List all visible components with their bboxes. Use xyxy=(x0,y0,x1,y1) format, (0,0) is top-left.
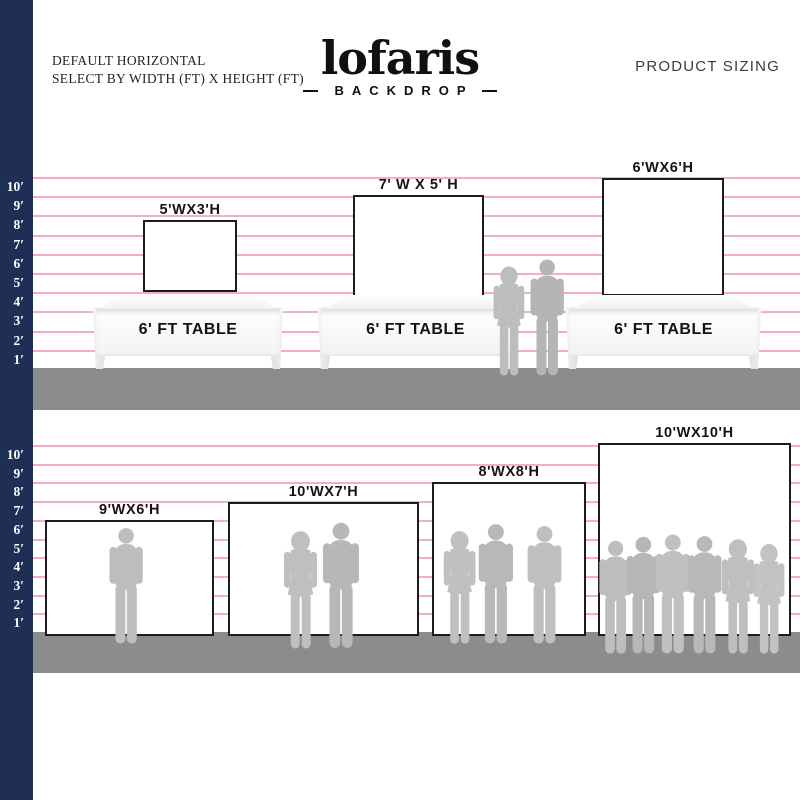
man-silhouette xyxy=(104,527,149,645)
couple-silhouette-top xyxy=(488,257,570,377)
backdrop-7x5: 7' W X 5' H xyxy=(353,195,484,297)
table-2-label: 6' FT TABLE xyxy=(319,321,512,339)
ruler-foot-label: 7′ xyxy=(0,504,29,518)
group-of-six-silhouette xyxy=(594,533,790,655)
ruler-foot-label: 8′ xyxy=(0,485,29,499)
group-of-three-silhouette xyxy=(438,523,568,645)
tablecloth-top xyxy=(323,295,508,310)
ruler-foot-label: 2′ xyxy=(0,598,29,612)
ruler-top-section: 10′9′8′7′6′5′4′3′2′1′ xyxy=(0,177,29,371)
ruler-foot-label: 6′ xyxy=(0,257,29,271)
ruler-foot-label: 10′ xyxy=(0,448,29,462)
ruler-sidebar xyxy=(0,0,33,800)
page-title: PRODUCT SIZING xyxy=(635,58,780,75)
floor-top-section xyxy=(33,368,800,410)
table-3-label: 6' FT TABLE xyxy=(567,321,760,339)
backdrop-5x3: 5'WX3'H xyxy=(143,220,237,292)
table-1-label: 6' FT TABLE xyxy=(94,321,282,339)
couple-silhouette xyxy=(278,521,366,650)
ruler-foot-label: 5′ xyxy=(0,542,29,556)
ruler-foot-label: 8′ xyxy=(0,218,29,232)
table-1: 6' FT TABLE xyxy=(94,295,282,370)
ruler-foot-label: 4′ xyxy=(0,295,29,309)
backdrop-8x8-label: 8'WX8'H xyxy=(394,464,624,480)
backdrop-6x6-label: 6'WX6'H xyxy=(564,160,762,176)
ruler-foot-label: 9′ xyxy=(0,467,29,481)
backdrop-7x5-label: 7' W X 5' H xyxy=(315,177,522,193)
ruler-foot-label: 2′ xyxy=(0,334,29,348)
ruler-foot-label: 4′ xyxy=(0,560,29,574)
backdrop-9x6-label: 9'WX6'H xyxy=(7,502,252,518)
tablecloth-top xyxy=(98,295,278,310)
ruler-foot-label: 10′ xyxy=(0,180,29,194)
ruler-bottom-section: 10′9′8′7′6′5′4′3′2′1′ xyxy=(0,445,29,634)
table-2: 6' FT TABLE xyxy=(319,295,512,370)
ruler-foot-label: 1′ xyxy=(0,616,29,630)
brand-logo-subtext: BACKDROP xyxy=(0,83,800,98)
ruler-foot-label: 3′ xyxy=(0,579,29,593)
backdrop-10x10-label: 10'WX10'H xyxy=(560,425,800,441)
ruler-foot-label: 6′ xyxy=(0,523,29,537)
ruler-foot-label: 5′ xyxy=(0,276,29,290)
tablecloth-top xyxy=(571,295,756,310)
ruler-foot-label: 1′ xyxy=(0,353,29,367)
ruler-foot-label: 3′ xyxy=(0,314,29,328)
backdrop-5x3-label: 5'WX3'H xyxy=(105,202,275,218)
ruler-foot-label: 9′ xyxy=(0,199,29,213)
table-3: 6' FT TABLE xyxy=(567,295,760,370)
backdrop-10x7-label: 10'WX7'H xyxy=(190,484,457,500)
ruler-foot-label: 7′ xyxy=(0,238,29,252)
backdrop-6x6: 6'WX6'H xyxy=(602,178,724,296)
